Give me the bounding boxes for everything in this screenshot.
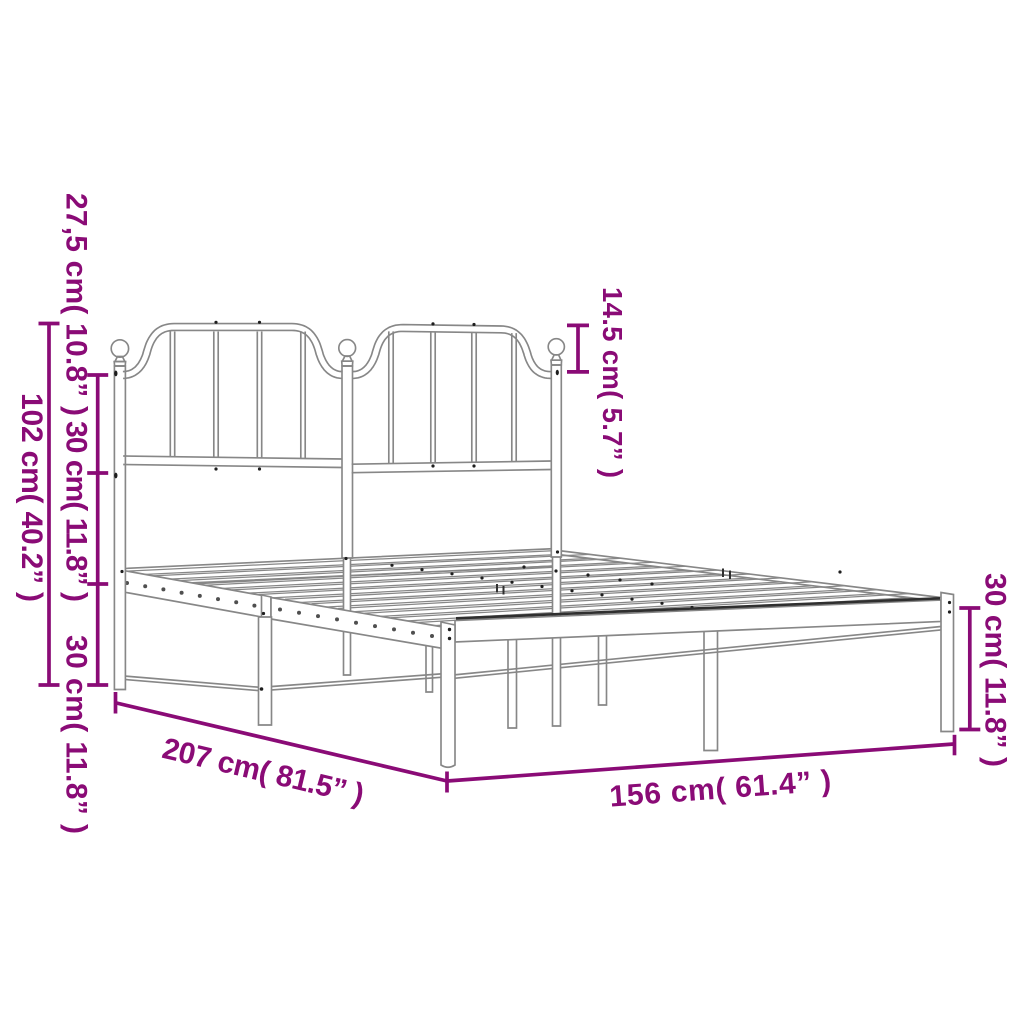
svg-text:30 cm( 11.8” ): 30 cm( 11.8” ) (60, 421, 93, 602)
svg-text:102 cm( 40.2” ): 102 cm( 40.2” ) (15, 393, 48, 602)
svg-text:27,5 cm( 10.8” ): 27,5 cm( 10.8” ) (60, 193, 93, 416)
svg-text:30 cm( 11.8” ): 30 cm( 11.8” ) (60, 635, 93, 834)
svg-text:14.5 cm( 5.7” ): 14.5 cm( 5.7” ) (597, 287, 628, 478)
svg-text:30 cm( 11.8” ): 30 cm( 11.8” ) (979, 573, 1012, 767)
